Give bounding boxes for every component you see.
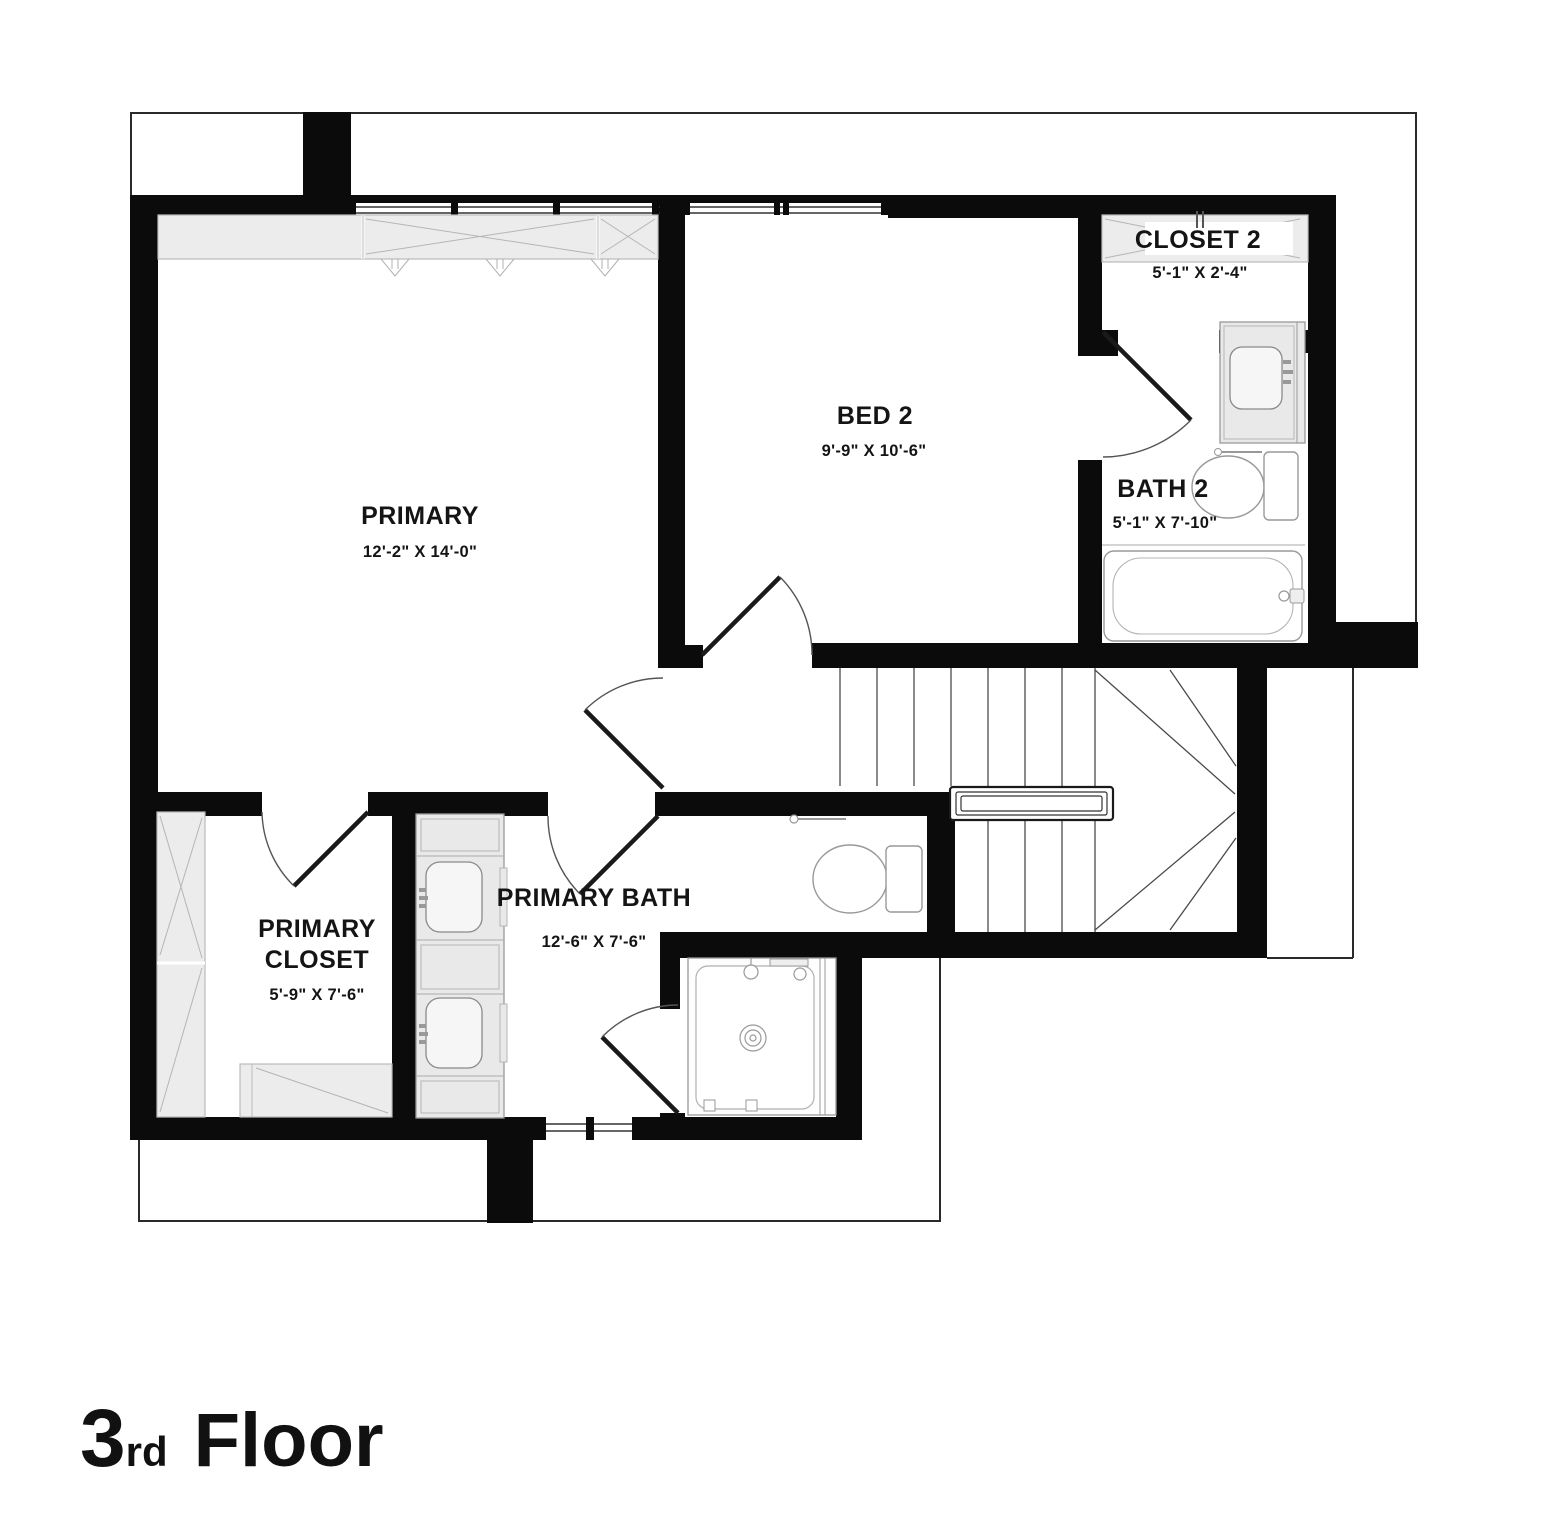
bathtub-icon: [1102, 545, 1305, 641]
dims-bed2: 9'-9" X 10'-6": [822, 442, 927, 460]
window-bed2-north: [683, 195, 888, 215]
dims-closet2: 5'-1" X 2'-4": [1152, 264, 1247, 282]
wall-stair-right: [1237, 643, 1267, 958]
wall-bath2-left: [1078, 460, 1102, 645]
hanger-bracket-icon: [381, 259, 619, 276]
floor-title: 3rdFloor: [80, 1398, 384, 1480]
door-primary: [585, 678, 663, 788]
wall-landing-south: [655, 792, 955, 816]
dims-bath2: 5'-1" X 7'-10": [1113, 514, 1218, 532]
label-primary: PRIMARY: [361, 502, 479, 530]
stairs-lower-treads: [988, 820, 1095, 932]
floor-plan-page: PRIMARY 12'-2" X 14'-0" BED 2 9'-9" X 10…: [0, 0, 1545, 1536]
stairs-upper-treads: [840, 668, 1095, 786]
floor-word: Floor: [194, 1398, 384, 1483]
window-primary-north: [349, 195, 660, 215]
chimney-bottom: [487, 1140, 533, 1223]
chimney-top: [303, 112, 351, 218]
bath2-vanity: [1215, 322, 1306, 456]
label-primary-bath: PRIMARY BATH: [497, 884, 691, 912]
door-primary-bath: [548, 816, 658, 894]
floor-ordinal-suffix: rd: [126, 1428, 168, 1475]
primary-vanity: [416, 814, 507, 1118]
floor-number: 3: [80, 1393, 126, 1484]
wall-closet-vanity: [392, 792, 416, 1137]
wall-right: [1308, 195, 1336, 645]
label-bath2: BATH 2: [1117, 475, 1208, 503]
door-bed2: [702, 577, 812, 655]
window-bath-south: [538, 1117, 640, 1140]
dims-primary-closet: 5'-9" X 7'-6": [269, 986, 364, 1004]
dims-primary: 12'-2" X 14'-0": [363, 543, 477, 561]
primary-wardrobe-shelf: [158, 215, 658, 276]
door-shower: [602, 1005, 678, 1113]
shower-icon: [688, 958, 836, 1115]
label-bed2: BED 2: [837, 402, 913, 430]
dims-primary-bath: 12'-6" X 7'-6": [542, 933, 647, 951]
wall-band-south: [660, 932, 1250, 958]
sink-icon: [419, 998, 482, 1068]
wall-bottom-left: [140, 1117, 538, 1140]
label-primary-closet-1: PRIMARY: [258, 915, 376, 943]
wall-closet2-left: [1078, 217, 1102, 330]
toilet-icon: [790, 815, 922, 913]
wall-primary-bed2: [658, 195, 685, 668]
label-closet2: CLOSET 2: [1135, 226, 1261, 254]
stairs-winder-lines: [1095, 670, 1236, 930]
wall-left: [130, 195, 158, 1140]
wall-right-jog: [1336, 622, 1418, 668]
door-primary-closet: [262, 812, 368, 886]
label-primary-closet-2: CLOSET: [265, 946, 369, 974]
wall-bed2-door-jamb: [658, 645, 703, 668]
floor-plan-drawing: PRIMARY 12'-2" X 14'-0" BED 2 9'-9" X 10…: [0, 0, 1545, 1536]
stairs-railing: [950, 787, 1113, 820]
wall-bottom-right: [640, 1117, 862, 1140]
wall-shower-stub-n: [660, 932, 680, 1009]
wall-shower-stairs: [836, 932, 862, 1140]
sink-icon: [419, 862, 482, 932]
